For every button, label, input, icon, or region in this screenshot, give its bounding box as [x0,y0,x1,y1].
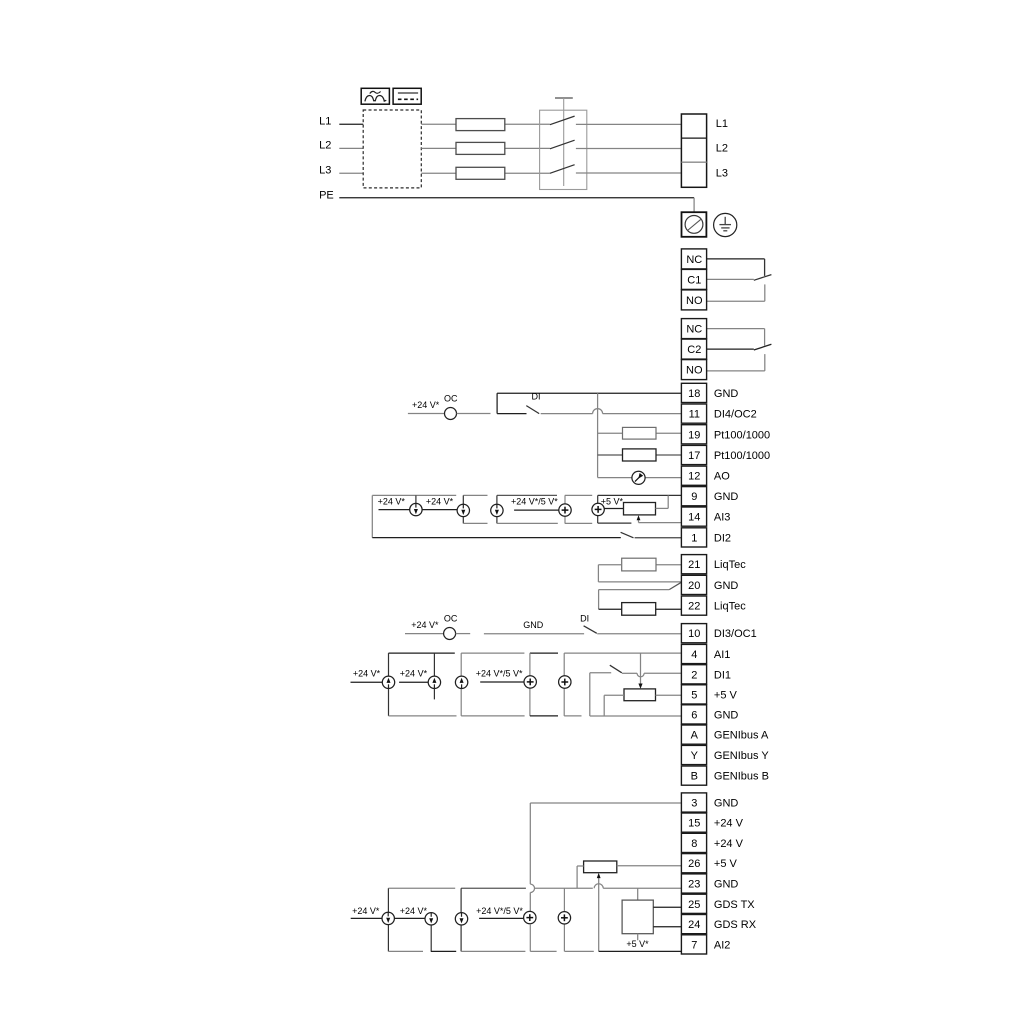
svg-text:22: 22 [688,601,700,613]
svg-text:GENIbus Y: GENIbus Y [714,750,769,762]
svg-text:OC: OC [444,393,458,403]
svg-text:8: 8 [691,838,697,850]
svg-text:+24 V*: +24 V* [412,400,440,410]
svg-text:NO: NO [686,295,703,307]
svg-text:20: 20 [688,580,700,592]
svg-text:GND: GND [523,620,544,630]
svg-text:1: 1 [691,532,697,544]
svg-text:+24 V: +24 V [714,838,744,850]
svg-text:C2: C2 [687,344,701,356]
svg-text:9: 9 [691,491,697,503]
svg-text:25: 25 [688,899,700,911]
svg-text:10: 10 [688,628,700,640]
svg-text:2: 2 [691,669,697,681]
svg-text:+24 V*/5 V*: +24 V*/5 V* [476,669,523,679]
svg-text:23: 23 [688,879,700,891]
svg-text:11: 11 [689,409,700,421]
svg-text:+5 V: +5 V [714,858,738,870]
svg-text:NO: NO [686,365,703,377]
svg-text:14: 14 [688,512,700,524]
svg-text:NC: NC [686,324,702,336]
svg-text:21: 21 [688,559,700,571]
svg-text:+24 V*: +24 V* [400,669,428,679]
svg-text:GND: GND [714,879,739,891]
svg-text:Y: Y [691,750,699,762]
svg-text:+5 V: +5 V [714,689,738,701]
svg-text:24: 24 [688,919,700,931]
svg-text:DI3/OC1: DI3/OC1 [714,628,757,640]
svg-text:15: 15 [688,818,700,830]
svg-text:Pt100/1000: Pt100/1000 [714,429,770,441]
svg-text:LiqTec: LiqTec [714,601,746,613]
svg-text:+24 V*: +24 V* [353,669,381,679]
svg-text:5: 5 [691,689,697,701]
svg-text:DI: DI [532,392,541,402]
svg-text:AI1: AI1 [714,649,731,661]
svg-text:7: 7 [691,939,697,951]
svg-text:+5 V*: +5 V* [601,496,624,506]
svg-text:+24 V*/5 V*: +24 V*/5 V* [476,906,523,916]
svg-text:GENIbus B: GENIbus B [714,771,769,783]
svg-text:L3: L3 [716,168,728,180]
svg-text:GND: GND [714,709,739,721]
svg-text:GND: GND [714,798,739,810]
svg-text:AI3: AI3 [714,512,731,524]
svg-text:+24 V*: +24 V* [426,496,454,506]
svg-text:+24 V*/5 V*: +24 V*/5 V* [511,496,558,506]
svg-text:12: 12 [688,471,700,483]
svg-text:+24 V*: +24 V* [378,496,406,506]
svg-text:A: A [691,730,699,742]
svg-text:L1: L1 [319,116,331,128]
svg-text:L2: L2 [319,140,331,152]
svg-text:DI4/OC2: DI4/OC2 [714,409,757,421]
svg-text:3: 3 [691,798,697,810]
svg-text:OC: OC [444,613,458,623]
svg-text:DI1: DI1 [714,669,731,681]
svg-text:GDS RX: GDS RX [714,919,757,931]
svg-text:DI2: DI2 [714,532,731,544]
svg-text:GENIbus A: GENIbus A [714,730,769,742]
svg-text:+24 V*: +24 V* [400,906,428,916]
svg-text:L2: L2 [716,142,728,154]
svg-text:+24 V*: +24 V* [352,906,380,916]
svg-text:PE: PE [319,190,334,202]
svg-text:AI2: AI2 [714,939,731,951]
svg-text:B: B [691,771,698,783]
svg-text:+5 V*: +5 V* [626,939,649,949]
svg-text:LiqTec: LiqTec [714,559,746,571]
svg-text:GND: GND [714,491,739,503]
svg-text:GDS TX: GDS TX [714,899,755,911]
svg-text:19: 19 [688,429,700,441]
svg-text:6: 6 [691,709,697,721]
svg-text:Pt100/1000: Pt100/1000 [714,450,770,462]
svg-text:26: 26 [688,858,700,870]
svg-text:GND: GND [714,580,739,592]
svg-text:+24 V*: +24 V* [411,620,439,630]
svg-text:4: 4 [691,649,697,661]
svg-text:AO: AO [714,471,730,483]
svg-text:DI: DI [580,613,589,623]
svg-text:17: 17 [688,450,700,462]
svg-text:GND: GND [714,388,739,400]
svg-text:C1: C1 [687,274,701,286]
svg-text:+24 V: +24 V [714,818,744,830]
svg-text:L3: L3 [319,164,331,176]
svg-text:L1: L1 [716,118,728,130]
svg-text:NC: NC [686,254,702,266]
svg-text:18: 18 [688,388,700,400]
